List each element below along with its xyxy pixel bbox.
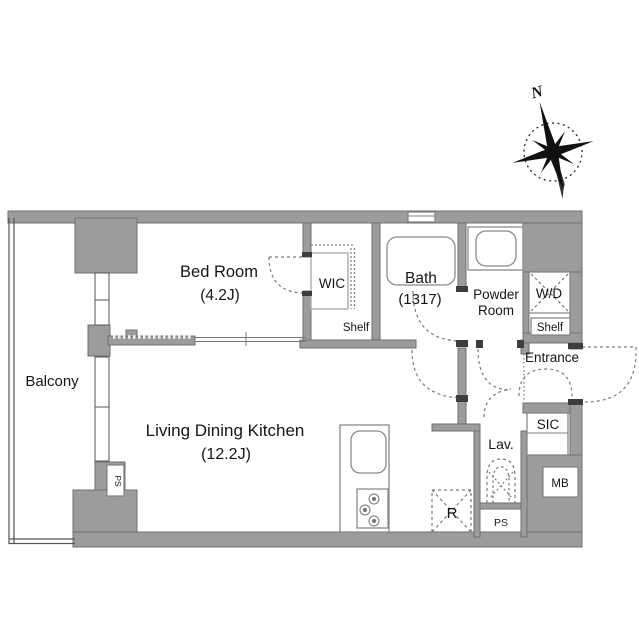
wic-label: WIC [319, 276, 345, 291]
entry-shelf-label: Shelf [537, 322, 564, 334]
ps-balcony-label: PS [113, 475, 123, 487]
floor-plan-drawing: N [0, 0, 639, 640]
entrance-label: Entrance [525, 350, 579, 365]
bedroom-window [95, 273, 109, 325]
bath-window [408, 212, 435, 222]
fridge-label: R [447, 505, 458, 522]
bath-size: (1317) [398, 291, 441, 308]
ps-hall-label: PS [494, 517, 508, 529]
ldk-window [95, 357, 109, 461]
ldk-size: (12.2J) [201, 446, 251, 463]
sic-label: SIC [537, 417, 560, 432]
wic-shelf-label: Shelf [343, 322, 370, 334]
windows-layer [95, 273, 109, 461]
floor-plan-page: N [0, 0, 639, 640]
bedroom-label: Bed Room [180, 263, 258, 281]
ldk-label: Living Dining Kitchen [146, 421, 305, 440]
mb-label: MB [551, 478, 569, 490]
wd-label: W/D [536, 286, 562, 301]
bath-label: Bath [405, 270, 437, 287]
powder-room-label-1: Powder [473, 287, 519, 302]
kitchen-counter [340, 425, 389, 532]
balcony-label: Balcony [25, 373, 79, 390]
lav-label: Lav. [488, 436, 513, 452]
powder-room-label-2: Room [478, 303, 514, 318]
bedroom-size: (4.2J) [200, 287, 240, 304]
